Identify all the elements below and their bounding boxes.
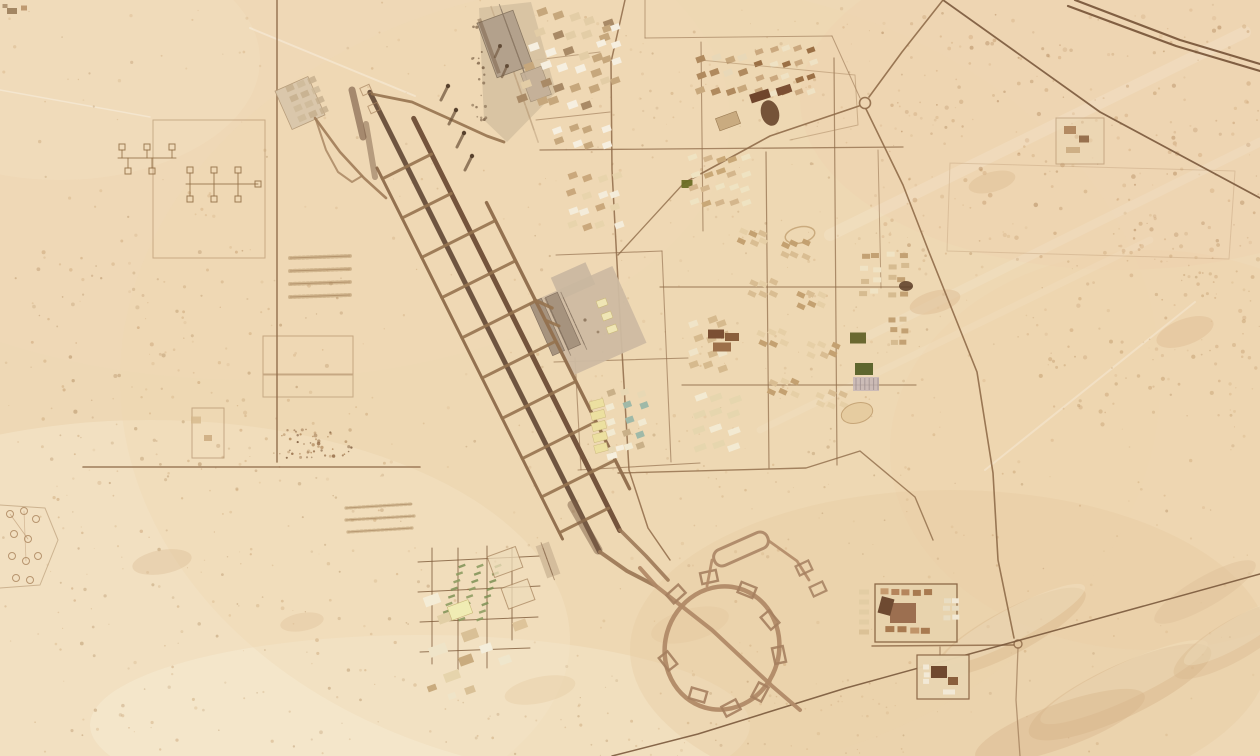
airbase-satellite-map xyxy=(0,0,1260,756)
satellite-screenshot xyxy=(0,0,1260,756)
